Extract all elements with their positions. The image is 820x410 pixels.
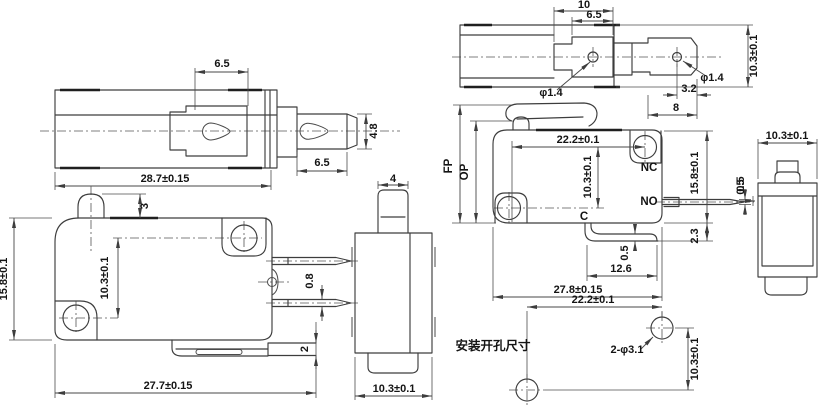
slot-hole-left [203,123,231,140]
foot-outline [368,353,418,373]
bracket-slot [196,350,242,355]
dim-bracket-thickness: 0.5 [619,245,631,260]
dim-terminal-thickness: 0.8 [304,273,316,288]
button-outline [378,190,408,233]
plunger-top-view: 6.5 4.8 6.5 28.7±0.15 [40,58,400,190]
lever-arm-outline [614,38,697,75]
lever-side-view: FP OP 22.2±0.1 10.3±0.1 NC NO C 15.8±0.1… [443,103,754,301]
extension-lines [355,181,432,400]
dim-hole-spacing: 10.3±0.1 [99,257,111,300]
extension-lines [55,68,372,190]
foot-outline [765,277,807,295]
dim-body-height: 15.8±0.1 [0,258,10,301]
mounting-hole-view: 22.2±0.1 2-φ3.1 10.3±0.1 安装开孔尺寸 [455,294,701,406]
lever-end-view: 10.3±0.1 0.5 [735,130,817,295]
dim-hole-callout: 2-φ3.1 [611,344,644,356]
dim-hole-spacing-h: 22.2±0.1 [557,134,600,146]
dim-hole-spacing-h: 22.2±0.1 [572,294,615,306]
micro-switch-drawing: 6.5 4.8 6.5 28.7±0.15 3 15.8±0.1 10.3±0.… [0,0,820,410]
extension-lines [554,7,753,119]
dim-body-width: 10.3±0.1 [766,130,809,142]
dim-bracket-length: 12.6 [610,263,631,275]
dim-bracket-drop: 2.3 [689,228,701,243]
dim-hole-right: φ1.4 [700,72,724,84]
mounting-bosses [55,218,266,340]
body-outline [758,183,817,277]
dim-hinge-inner-width: 6.5 [586,9,601,21]
dim-actuator-width: 6.5 [214,58,229,70]
label-c: C [580,211,588,223]
dim-tab-thickness: 2 [299,346,311,352]
dim-body-length: 27.7±0.15 [144,380,193,392]
dim-body-width: 10.3±0.1 [748,35,760,78]
dim-step: 0.5 [735,179,747,194]
dim-button-height: 3 [139,203,151,209]
label-op: OP [459,163,471,180]
body-outline [55,218,272,340]
centerlines [494,131,754,224]
label-fp: FP [443,158,455,173]
lever-top-view: 10 6.5 φ1.4 φ1.4 3.2 8 10.3±0.1 [452,0,760,119]
plunger-end-view: 4 10.3±0.1 [352,173,435,400]
dim-button-width: 4 [390,173,397,185]
body-outline [460,25,614,87]
dim-hole-spacing-v: 10.3±0.1 [689,338,701,381]
common-terminal-bracket [172,340,316,356]
lever-tab-outline [775,161,800,183]
leader-hole-left [557,62,590,90]
hole-centerlines [509,312,680,406]
side-tabs [352,247,435,337]
plunger-side-view: 3 15.8±0.1 10.3±0.1 0.8 2 27.7±0.15 [0,186,358,398]
extension-lines [452,105,751,301]
dim-arm-length: 8 [673,102,679,114]
label-no: NO [640,196,657,208]
dim-body-height: 15.8±0.1 [689,152,701,195]
dim-body-width: 10.3±0.1 [373,383,416,395]
common-terminal-bracket [585,223,658,241]
dim-hole-left: φ1.4 [539,87,563,99]
dim-shaft-height: 4.8 [368,123,380,138]
dim-hole-to-end: 3.2 [681,83,696,95]
dim-shaft-length: 6.5 [314,157,329,169]
drawing-canvas: 6.5 4.8 6.5 28.7±0.15 3 15.8±0.1 10.3±0.… [0,0,820,410]
body-outline [355,233,432,353]
label-nc: NC [641,162,658,174]
lever-and-button [506,103,597,130]
dim-body-length: 28.7±0.15 [141,173,190,185]
mounting-caption: 安装开孔尺寸 [455,338,531,353]
shaft-outline [277,107,357,157]
dim-hole-spacing-v: 10.3±0.1 [582,156,594,199]
